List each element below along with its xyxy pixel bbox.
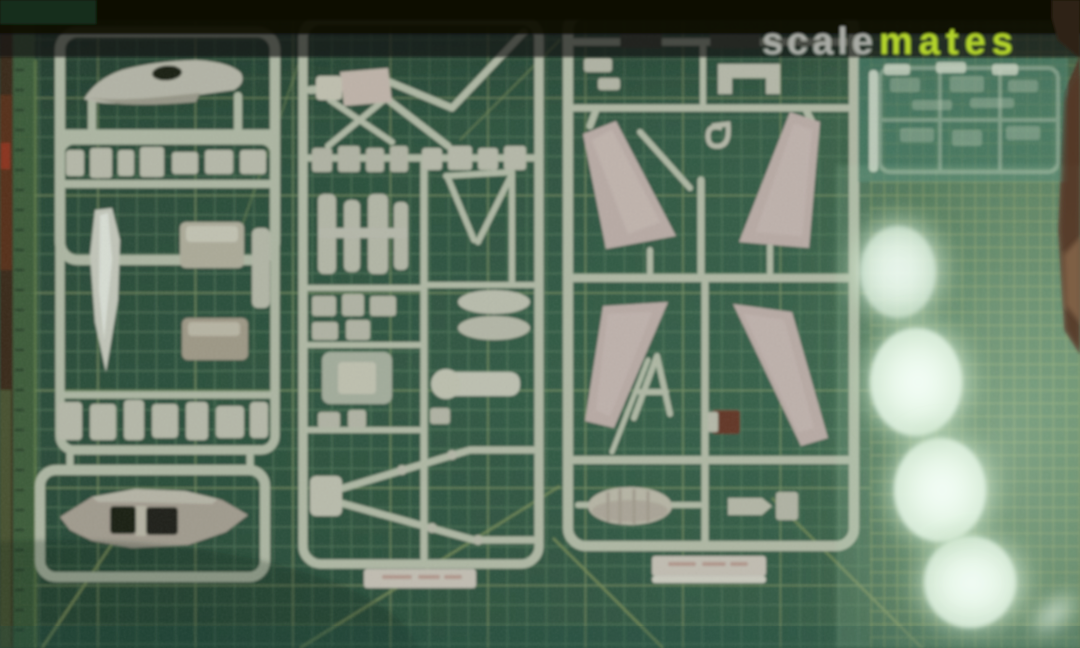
svg-text:mates: mates (879, 21, 1019, 63)
svg-text:scale: scale (762, 21, 877, 63)
